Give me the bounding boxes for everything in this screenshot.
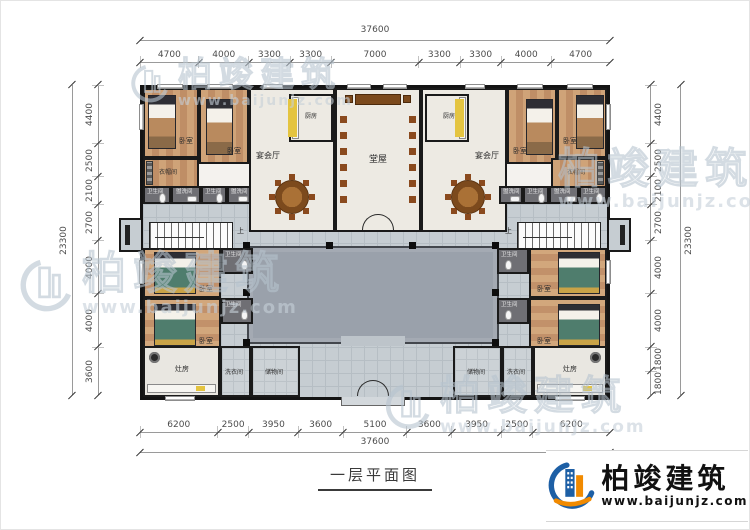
bed: [526, 99, 553, 155]
dim-label: 6200: [560, 421, 583, 430]
dim-segment: 2700: [651, 205, 667, 241]
chair-row: [340, 116, 347, 212]
kitchen-counter: [292, 97, 299, 139]
dim-segment: 6200: [140, 418, 218, 432]
dim-label: 4400: [655, 103, 664, 126]
company-logo: 柏竣建筑 www.baijunjz.com: [546, 450, 748, 522]
room-bathroom: 卫生间: [143, 186, 171, 204]
window: [465, 84, 485, 89]
dim-label: 3950: [465, 421, 488, 430]
sink: [238, 196, 248, 202]
room-washroom: 盥洗间: [499, 186, 523, 204]
stairs-up-label: 上: [505, 228, 512, 235]
dim-segment: 2100: [82, 177, 98, 205]
dim-segment: 3600: [407, 418, 452, 432]
dim-segment: 3600: [82, 347, 98, 395]
toilet: [505, 260, 512, 270]
dim-label: 37600: [361, 438, 390, 450]
room-label: 卫生间: [225, 303, 242, 309]
dim-label: 37600: [361, 26, 390, 38]
bed: [154, 252, 196, 294]
room-label: 堂屋: [369, 156, 387, 165]
bed: [148, 95, 176, 149]
room-main-hall: 堂屋: [335, 88, 421, 232]
room-label: 厨房: [305, 114, 317, 120]
room-banquet-hall: 宴会厅 厨房: [421, 88, 507, 232]
bed: [558, 252, 600, 294]
side-table: [403, 95, 411, 103]
dim-label: 2500: [505, 421, 528, 430]
window: [606, 104, 611, 130]
room-label: 卫生间: [501, 303, 518, 309]
dim-segment: 3300: [419, 48, 460, 62]
door-arc: [378, 214, 394, 230]
dim-segment: 2500: [501, 418, 532, 432]
room-stove: 灶房: [143, 346, 220, 397]
room-bedroom: 卧室: [143, 248, 221, 298]
dim-label: 3300: [469, 51, 492, 60]
toilet: [216, 193, 223, 203]
window: [606, 260, 611, 284]
column: [243, 339, 250, 346]
chair-row: [409, 116, 416, 212]
room-bathroom: 卫生间: [497, 298, 529, 324]
dim-segment: 6200: [533, 418, 611, 432]
window: [383, 84, 407, 89]
dim-label: 2500: [86, 149, 95, 172]
dim-label: 4000: [86, 256, 95, 279]
company-name: 柏竣建筑: [601, 464, 748, 493]
room-stove: 灶房: [533, 346, 607, 397]
sink: [187, 196, 197, 202]
dimension-bottom-segments: 620025003950360051003600395025006200: [140, 418, 610, 433]
company-url: www.baijunjz.com: [601, 494, 748, 508]
dim-label: 4000: [86, 309, 95, 332]
stairs-up-label: 上: [237, 228, 244, 235]
door-panel: [125, 225, 130, 245]
room-label: 盥洗间: [231, 190, 248, 196]
room-label: 洗衣间: [507, 370, 525, 376]
room-label: 卧室: [227, 148, 241, 155]
dim-segment: 4000: [651, 294, 667, 347]
dim-label: 4700: [569, 51, 592, 60]
drawing-title-text: 一层平面图: [318, 464, 432, 491]
dim-label: 4000: [515, 51, 538, 60]
dim-segment: 4000: [501, 48, 551, 62]
wardrobe: [146, 161, 153, 185]
dim-segment: 2500: [218, 418, 249, 432]
dimension-right-segments: 44002500210027004000400018001800: [650, 85, 667, 395]
bed: [576, 95, 604, 149]
dim-segment: 3600: [298, 418, 343, 432]
dim-segment: 4000: [82, 241, 98, 294]
dim-label: 2100: [86, 179, 95, 202]
dim-segment: 5100: [343, 418, 407, 432]
sink: [566, 196, 576, 202]
room-label: 宴会厅: [256, 152, 280, 160]
dim-segment: 3950: [249, 418, 298, 432]
room-label: 卧室: [537, 338, 551, 345]
door-panel: [620, 225, 625, 245]
column: [243, 289, 250, 296]
column: [492, 339, 499, 346]
dim-segment: 3300: [249, 48, 290, 62]
room-label: 衣帽间: [567, 170, 585, 176]
room-label: 储物间: [467, 370, 485, 376]
room-bedroom: 卧室: [529, 298, 607, 350]
bed: [154, 304, 196, 346]
room-bathroom: 卫生间: [523, 186, 549, 204]
dim-label: 23300: [685, 226, 694, 255]
room-label: 储物间: [265, 370, 283, 376]
room-label: 卧室: [537, 286, 551, 293]
room-bathroom: 卫生间: [579, 186, 607, 204]
dim-label: 1800: [655, 372, 664, 395]
column: [492, 289, 499, 296]
dim-label: 3300: [299, 51, 322, 60]
room-bedroom: 卧室: [143, 88, 199, 158]
dim-label: 2500: [222, 421, 245, 430]
room-cloakroom: 衣帽间: [551, 158, 607, 188]
dim-label: 2700: [655, 211, 664, 234]
room-washroom: 盥洗间: [549, 186, 579, 204]
dim-label: 2100: [655, 179, 664, 202]
column: [409, 242, 416, 249]
room-label: 盥洗间: [176, 190, 193, 196]
dim-label: 2500: [655, 149, 664, 172]
dim-label: 4400: [86, 103, 95, 126]
room-label: 卧室: [199, 286, 213, 293]
room-laundry: 洗衣间: [502, 346, 533, 397]
dim-label: 23300: [60, 226, 69, 255]
altar-table: [355, 94, 401, 105]
room-label: 盥洗间: [503, 190, 520, 196]
toilet: [596, 193, 603, 203]
floor-plan: 卧室 卧室 衣帽间 卫生间 盥洗间 卫生间 盥洗间 宴会厅 厨房: [140, 85, 610, 400]
room-bedroom: 卧室: [143, 298, 221, 350]
dim-segment: 4000: [82, 294, 98, 347]
dim-label: 1800: [655, 348, 664, 371]
room-bathroom: 卫生间: [221, 298, 253, 324]
dim-label: 3300: [258, 51, 281, 60]
dim-label: 4000: [655, 309, 664, 332]
entrance-steps: [341, 397, 405, 406]
dim-label: 4000: [655, 256, 664, 279]
floorplan-page: { "page": { "title_label": "一层平面图" }, "l…: [0, 0, 750, 530]
dim-label: 5100: [364, 421, 387, 430]
dim-segment: 4000: [651, 241, 667, 294]
room-label: 卫生间: [501, 253, 518, 259]
dim-segment: 4400: [82, 85, 98, 144]
dim-label: 3300: [428, 51, 451, 60]
column: [326, 242, 333, 249]
dim-segment: 4000: [199, 48, 249, 62]
dim-segment: 3300: [290, 48, 331, 62]
dimension-left-total: 23300: [56, 85, 73, 395]
dim-label: 2700: [86, 211, 95, 234]
room-bathroom: 卫生间: [201, 186, 227, 204]
dim-segment: 4700: [140, 48, 199, 62]
dimension-top-total: 37600: [140, 26, 610, 41]
dim-label: 7000: [364, 51, 387, 60]
room-bathroom: 卫生间: [221, 248, 253, 274]
room-label: 宴会厅: [475, 152, 499, 160]
courtyard: [247, 246, 499, 344]
room-label: 洗衣间: [225, 370, 243, 376]
kitchen-counter: [459, 97, 466, 139]
kitchen-counter: [537, 384, 603, 393]
dim-label: 3600: [309, 421, 332, 430]
company-logo-text: 柏竣建筑 www.baijunjz.com: [601, 464, 748, 507]
toilet: [505, 310, 512, 320]
room-label: 卧室: [513, 148, 527, 155]
dim-label: 3950: [262, 421, 285, 430]
room-storage: 储物间: [453, 346, 502, 397]
room-label: 卧室: [179, 138, 193, 145]
toilet: [159, 193, 166, 203]
round-table: [275, 180, 309, 214]
round-table: [451, 180, 485, 214]
kitchen-counter: [147, 384, 216, 393]
toilet: [538, 193, 545, 203]
window: [139, 104, 144, 130]
room-cloakroom: 衣帽间: [143, 158, 199, 188]
window: [165, 396, 195, 401]
room-label: 卫生间: [225, 253, 242, 259]
room-bathroom: 卫生间: [497, 248, 529, 274]
dim-label: 4000: [212, 51, 235, 60]
window: [347, 84, 371, 89]
room-bedroom: 卧室: [199, 88, 249, 164]
room-label: 衣帽间: [159, 170, 177, 176]
side-table: [345, 95, 353, 103]
dim-segment: 4400: [651, 85, 667, 144]
window: [207, 84, 233, 89]
window: [139, 260, 144, 284]
side-porch: [609, 218, 631, 252]
dim-label: 4700: [158, 51, 181, 60]
window: [567, 84, 593, 89]
dim-segment: 2500: [82, 144, 98, 177]
room-storage: 储物间: [251, 346, 300, 397]
stove: [149, 352, 160, 363]
dim-label: 3600: [86, 360, 95, 383]
dim-segment: 3950: [452, 418, 501, 432]
dimension-bottom-total: 37600: [140, 438, 610, 453]
window: [555, 396, 585, 401]
room-label: 灶房: [175, 366, 189, 373]
door-arc: [362, 214, 378, 230]
room-bedroom: 卧室: [529, 248, 607, 298]
window: [157, 84, 183, 89]
room-label: 灶房: [563, 366, 577, 373]
room-bedroom: 卧室: [557, 88, 607, 158]
room-bedroom: 卧室: [507, 88, 557, 164]
bed: [558, 304, 600, 346]
dim-label: 3600: [418, 421, 441, 430]
dimension-right-total: 23300: [680, 85, 697, 395]
room-label: 厨房: [443, 114, 455, 120]
dim-segment: 2700: [82, 205, 98, 241]
room-kitchen: 厨房: [289, 94, 333, 142]
toilet: [241, 310, 248, 320]
drawing-title: 一层平面图: [290, 464, 460, 491]
dimension-top-segments: 470040003300330070003300330040004700: [140, 48, 610, 63]
room-washroom: 盥洗间: [227, 186, 251, 204]
room-label: 卧室: [563, 138, 577, 145]
toilet: [241, 260, 248, 270]
room-washroom: 盥洗间: [171, 186, 201, 204]
side-porch: [119, 218, 141, 252]
sink: [510, 196, 520, 202]
room-label: 盥洗间: [554, 190, 571, 196]
dimension-left-segments: 4400250021002700400040003600: [82, 85, 99, 395]
room-label: 卧室: [199, 338, 213, 345]
room-kitchen: 厨房: [425, 94, 469, 142]
window: [263, 84, 283, 89]
dim-segment: 4700: [551, 48, 610, 62]
window: [517, 84, 543, 89]
wardrobe: [597, 161, 604, 185]
courtyard-walkway: [341, 336, 405, 346]
room-laundry: 洗衣间: [220, 346, 251, 397]
room-banquet-hall: 宴会厅 厨房: [249, 88, 335, 232]
dim-segment: 3300: [460, 48, 501, 62]
dim-label: 6200: [167, 421, 190, 430]
building-logo-icon: [546, 457, 595, 515]
dim-segment: 7000: [331, 48, 419, 62]
stove: [590, 352, 601, 363]
